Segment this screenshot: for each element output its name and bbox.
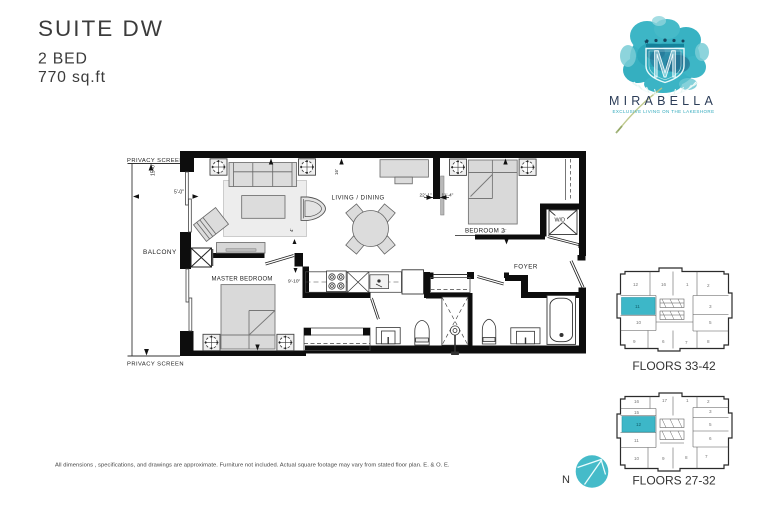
- svg-text:W/D: W/D: [555, 218, 566, 224]
- svg-text:5: 5: [709, 320, 712, 325]
- svg-text:12: 12: [633, 282, 639, 287]
- svg-text:4': 4': [289, 229, 294, 232]
- svg-text:2: 2: [707, 283, 710, 288]
- svg-text:5'-0": 5'-0": [174, 190, 184, 196]
- svg-text:9: 9: [662, 456, 665, 461]
- svg-text:3: 3: [709, 304, 712, 309]
- svg-text:770 sq.ft: 770 sq.ft: [38, 69, 106, 86]
- svg-text:M: M: [652, 44, 678, 86]
- svg-text:1': 1': [503, 228, 506, 233]
- svg-text:15'-0": 15'-0": [151, 163, 157, 176]
- svg-text:6: 6: [709, 436, 712, 441]
- svg-text:11: 11: [634, 438, 639, 443]
- svg-text:9'-10": 9'-10": [288, 279, 301, 285]
- svg-text:LIVING / DINING: LIVING / DINING: [332, 196, 385, 202]
- svg-text:FOYER: FOYER: [514, 264, 538, 271]
- svg-text:8: 8: [685, 455, 688, 460]
- svg-text:All dimensions , specification: All dimensions , specifications, and dra…: [55, 463, 450, 469]
- svg-text:MASTER BEDROOM: MASTER BEDROOM: [212, 277, 273, 283]
- svg-text:10: 10: [634, 456, 640, 461]
- svg-text:3: 3: [709, 409, 712, 414]
- svg-text:9: 9: [633, 339, 636, 344]
- svg-text:1: 1: [686, 398, 689, 403]
- svg-text:MIRABELLA: MIRABELLA: [609, 94, 717, 108]
- svg-text:1: 1: [686, 282, 689, 287]
- svg-text:7: 7: [705, 454, 708, 459]
- svg-text:SUITE DW: SUITE DW: [38, 16, 164, 41]
- svg-text:EXCLUSIVE LIVING ON THE LAKESH: EXCLUSIVE LIVING ON THE LAKESHORE: [612, 109, 714, 114]
- svg-text:2 BED: 2 BED: [38, 51, 88, 68]
- svg-text:10: 10: [636, 320, 642, 325]
- svg-text:15: 15: [634, 410, 640, 415]
- svg-text:PRIVACY SCREEN: PRIVACY SCREEN: [127, 158, 184, 164]
- svg-text:7: 7: [685, 340, 688, 345]
- svg-text:FLOORS 33-42: FLOORS 33-42: [632, 359, 716, 373]
- svg-text:16: 16: [661, 282, 667, 287]
- svg-text:5: 5: [709, 422, 712, 427]
- svg-text:6: 6: [662, 339, 665, 344]
- svg-text:BEDROOM 2: BEDROOM 2: [465, 228, 505, 235]
- svg-text:17: 17: [662, 398, 668, 403]
- svg-text:N: N: [562, 474, 570, 486]
- svg-text:2: 2: [707, 399, 710, 404]
- svg-text:16: 16: [634, 399, 640, 404]
- svg-text:12: 12: [636, 422, 642, 427]
- svg-text:11: 11: [635, 304, 640, 309]
- svg-text:16': 16': [334, 169, 339, 175]
- svg-text:8: 8: [707, 339, 710, 344]
- svg-text:FLOORS 27-32: FLOORS 27-32: [632, 474, 716, 488]
- svg-text:BALCONY: BALCONY: [143, 249, 177, 256]
- svg-text:PRIVACY SCREEN: PRIVACY SCREEN: [127, 362, 184, 368]
